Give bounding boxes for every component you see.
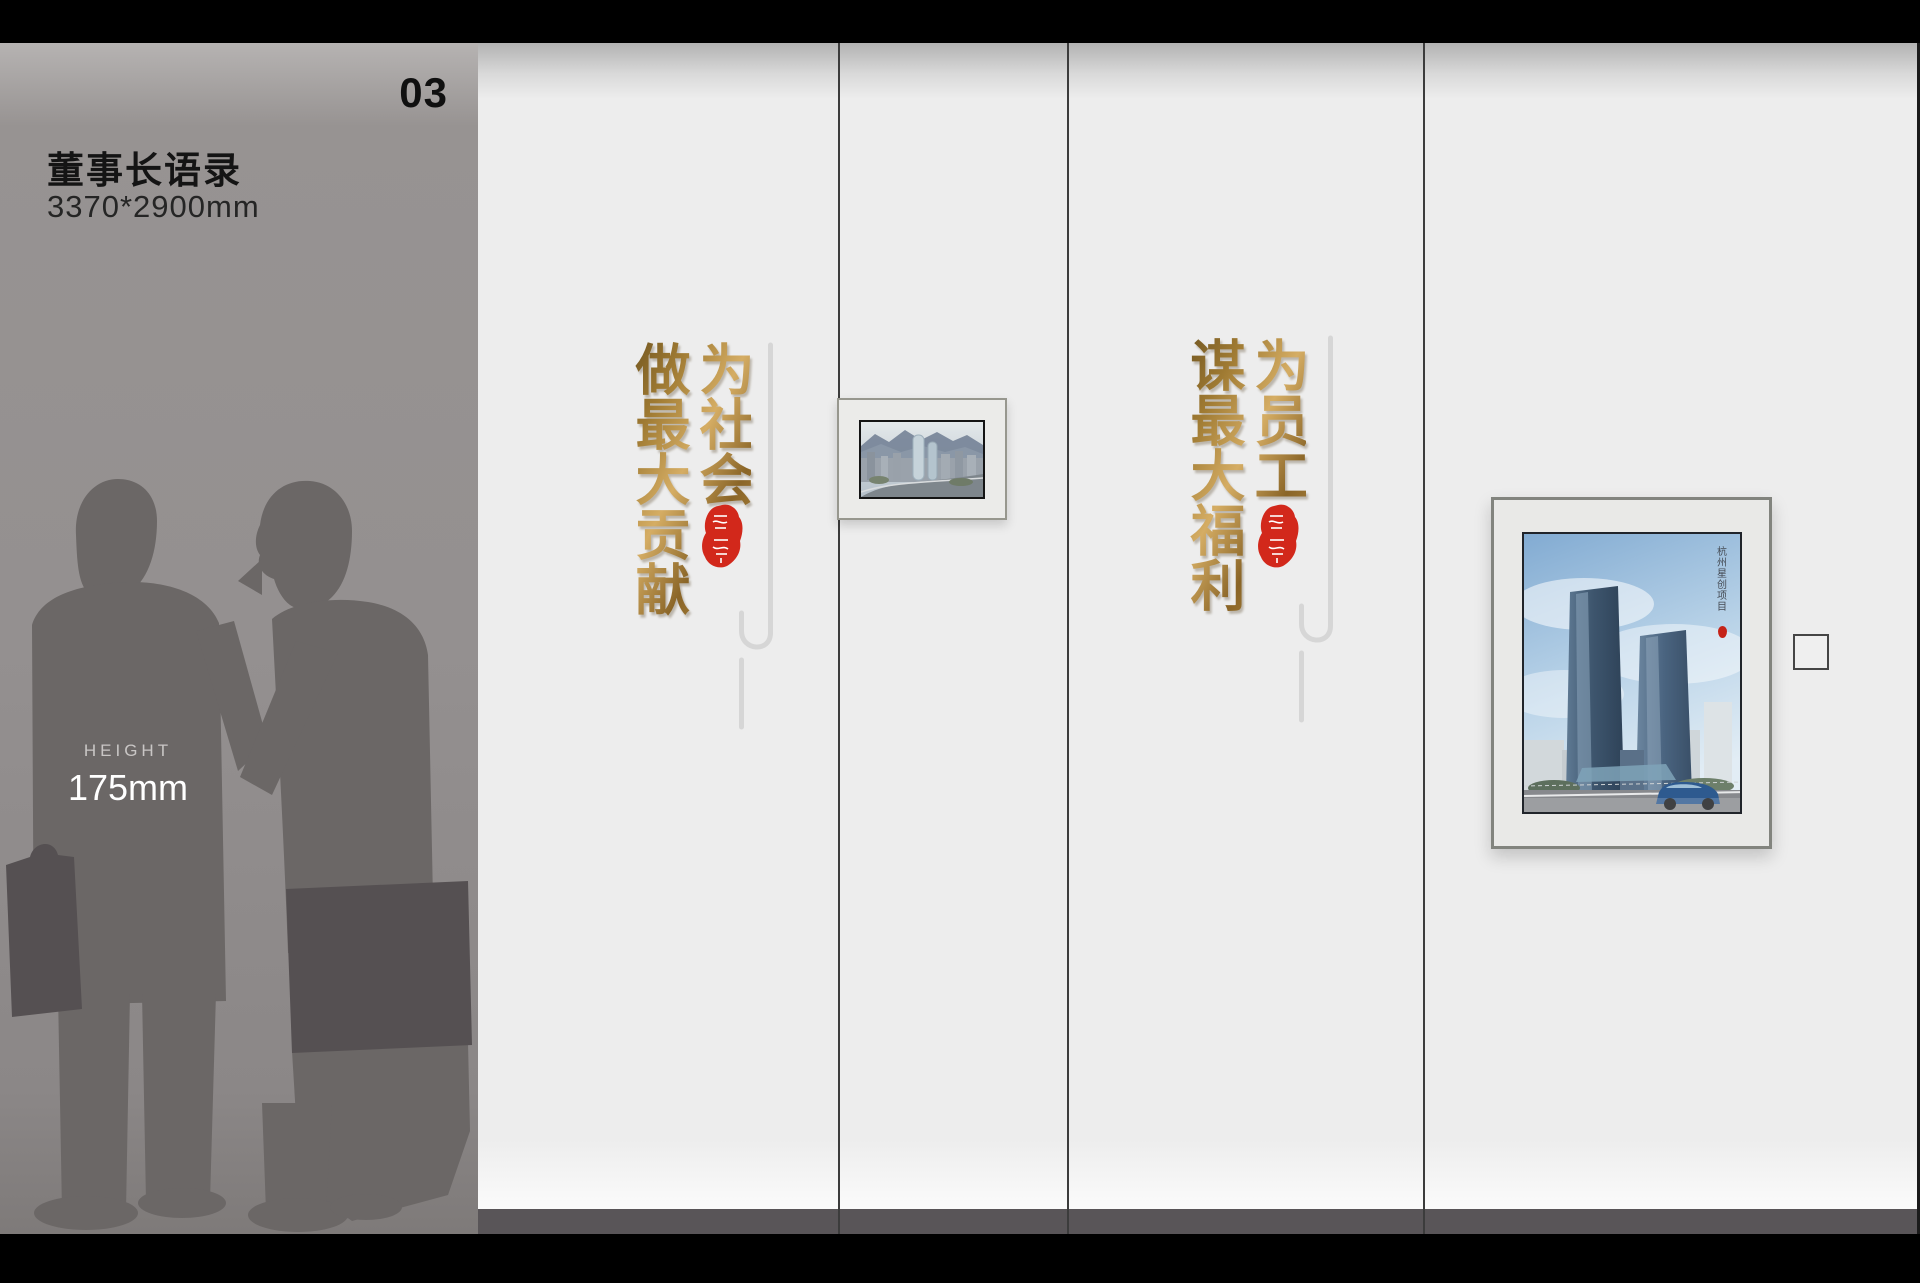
caption-seal-icon bbox=[1718, 626, 1727, 638]
wall-top-shadow bbox=[478, 43, 1920, 99]
wall-socket-square bbox=[1793, 634, 1829, 670]
board-title: 董事长语录 bbox=[47, 140, 242, 194]
person-b-head bbox=[256, 481, 352, 609]
seal-stamp-icon bbox=[1255, 503, 1301, 569]
seal-stamp-icon bbox=[699, 503, 745, 569]
baseboard bbox=[478, 1209, 1920, 1234]
quote-line-secondary: 谋最大福利 bbox=[1183, 337, 1242, 623]
tower-rendering-photo: 杭州星创项目 bbox=[1522, 532, 1742, 814]
quote-line-primary: 为员工 bbox=[1247, 337, 1306, 623]
quote-line-secondary: 做最大贡献 bbox=[628, 341, 687, 627]
cityscape-photo bbox=[859, 420, 985, 499]
height-label: HEIGHT bbox=[28, 741, 228, 761]
wall-panel-divider bbox=[838, 43, 840, 1234]
quote-block-society: 为社会 做最大贡献 bbox=[628, 341, 751, 627]
top-letterbox-bar bbox=[0, 0, 1920, 44]
bottom-letterbox-bar bbox=[0, 1234, 1920, 1283]
person-a-head bbox=[76, 479, 157, 600]
left-info-panel: 03 董事长语录 3370*2900mm HEIGHT 175mm bbox=[0, 43, 478, 1234]
board-dimensions: 3370*2900mm bbox=[47, 189, 260, 225]
large-picture-frame: 杭州星创项目 bbox=[1491, 497, 1772, 849]
tower-rendering-art bbox=[1524, 534, 1742, 814]
photo-caption: 杭州星创项目 bbox=[1713, 546, 1728, 612]
quote-block-welfare: 为员工 谋最大福利 bbox=[1183, 337, 1306, 623]
cityscape-photo-art bbox=[861, 422, 983, 497]
wall-panel-divider bbox=[1067, 43, 1069, 1234]
height-value: 175mm bbox=[28, 767, 228, 809]
slide-number: 03 bbox=[399, 69, 448, 117]
quote-line-primary: 为社会 bbox=[692, 341, 751, 627]
briefcase-a bbox=[6, 844, 82, 1017]
wall-panel-divider bbox=[1423, 43, 1425, 1234]
briefcase-b bbox=[286, 881, 472, 1053]
height-annotation: HEIGHT 175mm bbox=[28, 741, 228, 809]
wall-bottom-glow bbox=[478, 1140, 1920, 1209]
presentation-slide: 03 董事长语录 3370*2900mm HEIGHT 175mm 为社会 做最… bbox=[0, 0, 1920, 1283]
small-picture-frame bbox=[837, 398, 1007, 520]
